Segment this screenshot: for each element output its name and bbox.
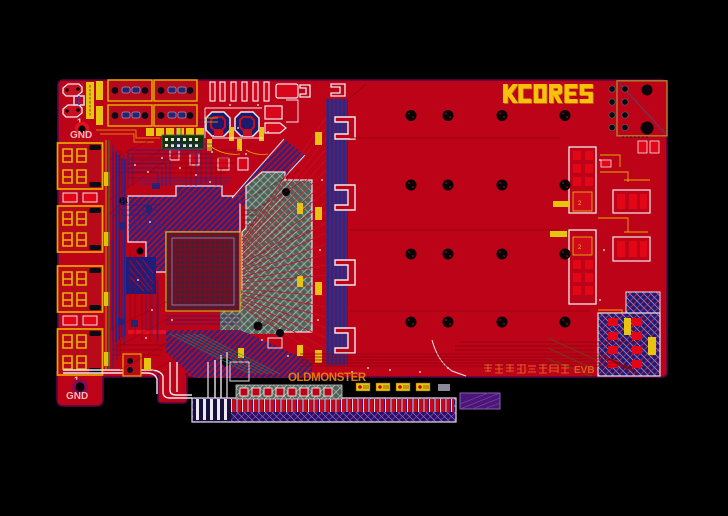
- svg-text:GND: GND: [70, 130, 92, 141]
- svg-text:OLDMONSTER: OLDMONSTER: [288, 372, 367, 384]
- svg-text:EVB: EVB: [574, 365, 595, 376]
- svg-text:GND: GND: [66, 391, 88, 402]
